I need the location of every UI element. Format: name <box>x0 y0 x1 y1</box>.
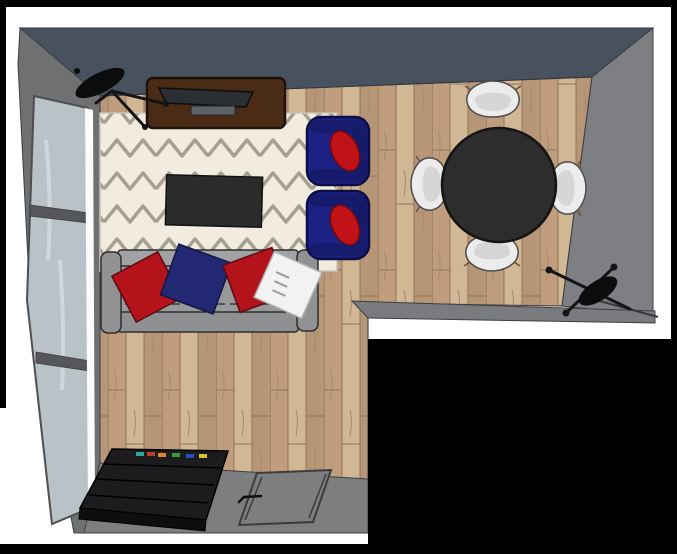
render-viewport <box>0 0 677 554</box>
armchair-1 <box>307 117 369 185</box>
room-render <box>0 0 677 554</box>
room-cutout <box>368 339 677 554</box>
sofa <box>101 244 322 333</box>
dining-table <box>442 128 556 242</box>
frame-top <box>0 0 677 7</box>
frame-bottom <box>0 544 677 554</box>
dining-chair-top <box>465 81 521 117</box>
sofa-arm-left <box>101 252 121 333</box>
coffee-table <box>165 175 262 227</box>
soundbar <box>191 106 235 115</box>
armchair-2 <box>307 191 369 259</box>
frame-right <box>671 0 677 346</box>
frame-left <box>0 0 6 408</box>
